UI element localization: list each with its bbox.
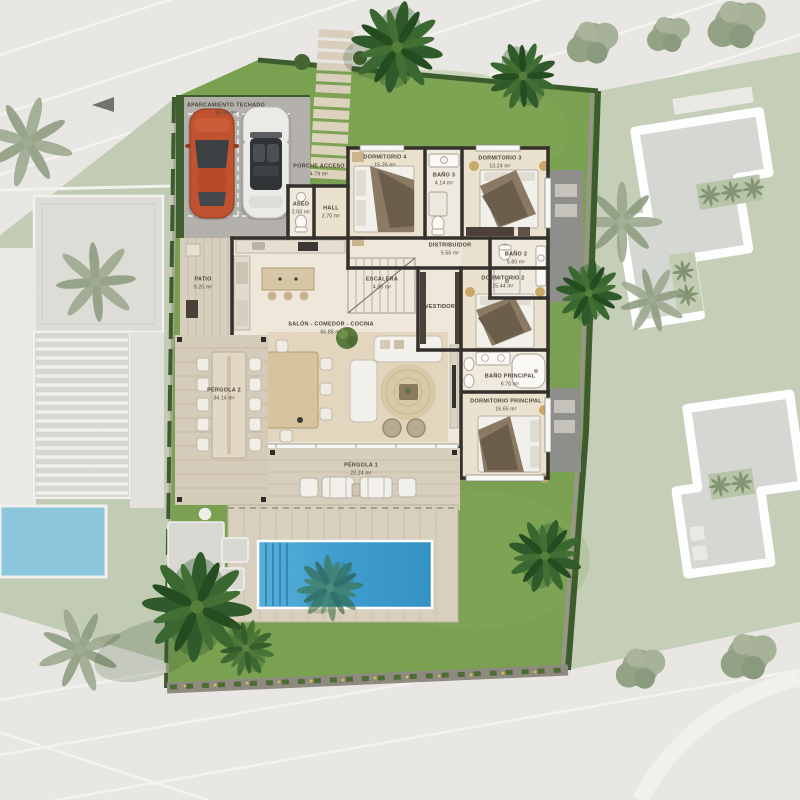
site-plan-drawing bbox=[0, 0, 800, 800]
texture-overlay bbox=[0, 0, 800, 800]
site-plan: APARCAMIENTO TECHADO36.94 m² PORCHE ACCE… bbox=[0, 0, 800, 800]
